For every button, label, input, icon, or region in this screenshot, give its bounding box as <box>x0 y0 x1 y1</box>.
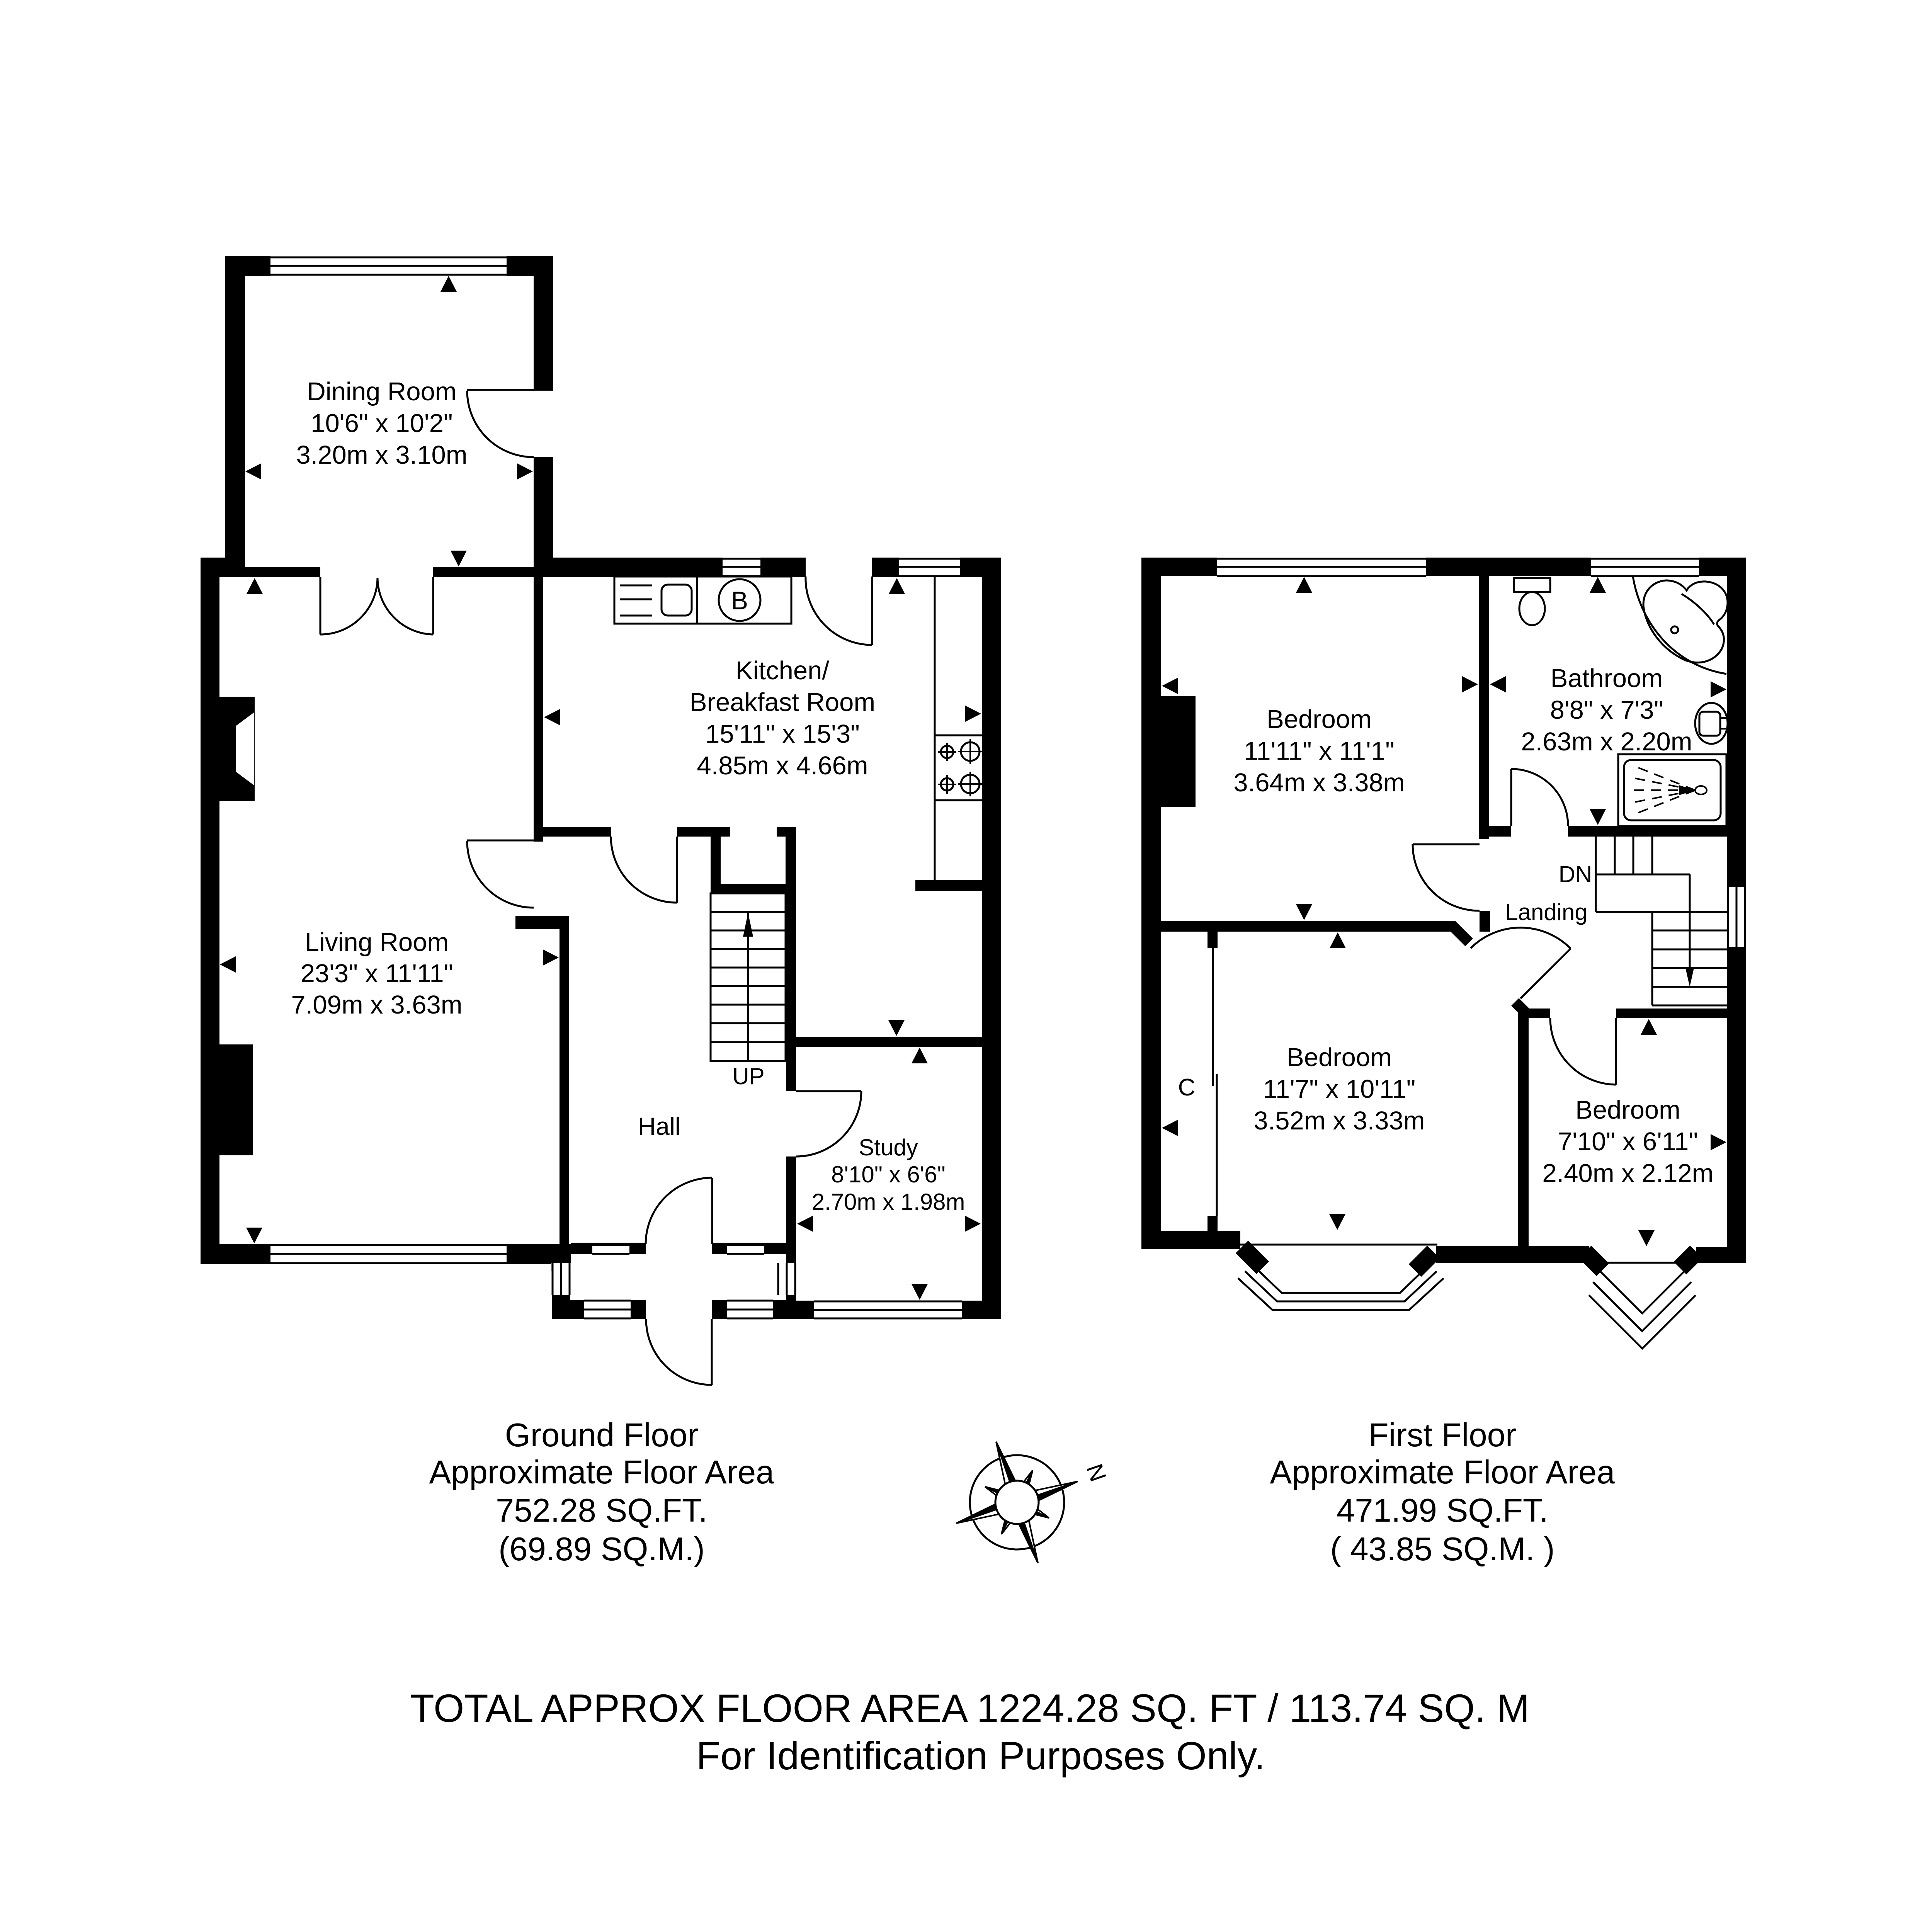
svg-text:Ground Floor: Ground Floor <box>505 1417 699 1454</box>
svg-text:( 43.85 SQ.M. ): ( 43.85 SQ.M. ) <box>1330 1531 1554 1568</box>
svg-text:Approximate Floor Area: Approximate Floor Area <box>429 1454 775 1491</box>
svg-text:Breakfast Room: Breakfast Room <box>690 688 875 717</box>
svg-text:10'6" x 10'2": 10'6" x 10'2" <box>311 409 452 438</box>
svg-text:3.64m x 3.38m: 3.64m x 3.38m <box>1233 768 1405 797</box>
svg-text:Dining Room: Dining Room <box>307 377 456 406</box>
svg-text:11'11" x 11'1": 11'11" x 11'1" <box>1244 736 1395 765</box>
svg-text:(69.89 SQ.M.): (69.89 SQ.M.) <box>498 1531 705 1568</box>
svg-text:15'11" x 15'3": 15'11" x 15'3" <box>705 719 860 748</box>
svg-text:Bedroom: Bedroom <box>1575 1095 1680 1124</box>
svg-text:C: C <box>1178 1074 1196 1101</box>
svg-text:Study: Study <box>859 1134 918 1160</box>
svg-text:2.40m x 2.12m: 2.40m x 2.12m <box>1542 1159 1713 1188</box>
svg-text:2.70m x 1.98m: 2.70m x 1.98m <box>812 1189 965 1215</box>
svg-text:11'7" x 10'11": 11'7" x 10'11" <box>1263 1075 1416 1104</box>
svg-text:Bedroom: Bedroom <box>1287 1043 1392 1072</box>
svg-text:TOTAL APPROX FLOOR AREA 1224.2: TOTAL APPROX FLOOR AREA 1224.28 SQ. FT /… <box>410 1686 1530 1730</box>
svg-text:Bathroom: Bathroom <box>1551 664 1663 693</box>
svg-text:First Floor: First Floor <box>1369 1417 1517 1454</box>
svg-text:8'10" x 6'6": 8'10" x 6'6" <box>831 1162 946 1187</box>
svg-text:8'8" x 7'3": 8'8" x 7'3" <box>1550 696 1663 724</box>
svg-text:For Identification Purposes On: For Identification Purposes Only. <box>696 1734 1265 1778</box>
svg-text:Landing: Landing <box>1505 899 1588 925</box>
svg-text:3.20m x 3.10m: 3.20m x 3.10m <box>296 440 467 469</box>
svg-text:Bedroom: Bedroom <box>1267 705 1372 734</box>
svg-text:23'3" x 11'11": 23'3" x 11'11" <box>301 959 453 988</box>
svg-text:471.99 SQ.FT.: 471.99 SQ.FT. <box>1337 1492 1548 1529</box>
svg-text:B: B <box>731 586 748 615</box>
svg-text:7.09m x 3.63m: 7.09m x 3.63m <box>291 990 462 1019</box>
svg-text:7'10" x 6'11": 7'10" x 6'11" <box>1558 1127 1698 1156</box>
svg-text:Approximate Floor Area: Approximate Floor Area <box>1270 1454 1616 1491</box>
svg-text:2.63m x 2.20m: 2.63m x 2.20m <box>1521 727 1692 756</box>
svg-text:DN: DN <box>1559 861 1592 887</box>
svg-text:752.28 SQ.FT.: 752.28 SQ.FT. <box>496 1492 707 1529</box>
svg-text:UP: UP <box>732 1063 764 1089</box>
svg-text:Hall: Hall <box>638 1112 680 1140</box>
svg-text:Living Room: Living Room <box>305 928 449 957</box>
svg-text:Kitchen/: Kitchen/ <box>736 656 829 685</box>
svg-text:3.52m x 3.33m: 3.52m x 3.33m <box>1253 1106 1425 1135</box>
svg-text:4.85m x 4.66m: 4.85m x 4.66m <box>697 751 868 780</box>
